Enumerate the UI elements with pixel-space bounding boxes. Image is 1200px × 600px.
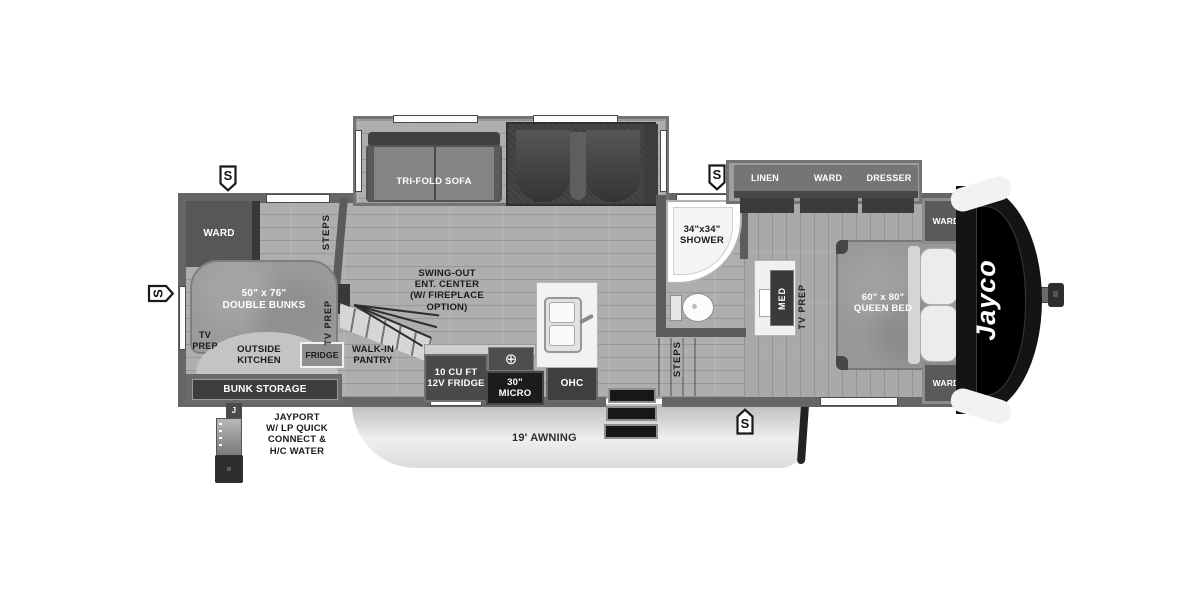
fridge-12v-label: 10 CU FT 12V FRIDGE (427, 367, 484, 389)
window-bunkroom-top (266, 194, 330, 203)
tri-fold-sofa: TRI-FOLD SOFA (366, 145, 502, 202)
jayport-label: JAYPORT W/ LP QUICK CONNECT & H/C WATER (244, 412, 350, 457)
jayport-device-lower (215, 455, 243, 483)
fridge-12v: 10 CU FT 12V FRIDGE (424, 354, 488, 402)
slide-end-cabinet (644, 124, 658, 204)
front-cap: Jayco (956, 186, 1042, 414)
sofa-slide-window-1 (393, 115, 478, 123)
window-bottom-bedroom (820, 397, 898, 406)
bunk-wardrobe: WARD (186, 201, 260, 267)
ward-skirt (800, 197, 858, 213)
med-cabinet: MED (770, 270, 794, 326)
dresser-cabinet: DRESSER (860, 165, 918, 198)
ward-slide-label: WARD (814, 173, 842, 184)
microwave: 30" MICRO (486, 371, 544, 405)
speaker-badge-top-left: S (219, 165, 237, 192)
walk-in-pantry-label: WALK-IN PANTRY (340, 344, 406, 366)
entry-step-3 (604, 424, 658, 439)
speaker-badge-bath: S (708, 164, 726, 191)
window-left-wall (179, 286, 186, 350)
ward-slide-cabinet: WARD (796, 165, 860, 198)
outside-kitchen-label: OUTSIDE KITCHEN (216, 344, 302, 366)
speaker-badge-left: S (148, 285, 175, 303)
bedroom-tv-prep-label: TV PREP (797, 284, 808, 330)
ent-center-label: SWING-OUT ENT. CENTER (W/ FIREPLACE OPTI… (390, 268, 504, 313)
jayport-device-upper (216, 418, 242, 456)
hitch-block (1048, 283, 1064, 307)
jayport-tab: J (226, 403, 242, 418)
rv-floorplan: 19' AWNING WARD STEPS 50" x 76" DOUBLE B… (0, 0, 1200, 600)
awning-label: 19' AWNING (512, 432, 577, 445)
queen-bed-label: 60" x 80" QUEEN BED (846, 292, 920, 314)
theater-seat-left (516, 130, 570, 202)
dresser-skirt (862, 197, 914, 213)
bath-steps-label: STEPS (672, 340, 683, 378)
ohc-cabinet: OHC (546, 366, 598, 402)
bunk-wardrobe-label: WARD (203, 228, 234, 240)
theater-seat-right (586, 130, 640, 202)
bunk-storage-bar: BUNK STORAGE (192, 379, 338, 400)
sofa-slide-window-right (660, 130, 667, 192)
jayport-tab-label: J (232, 406, 237, 415)
linen-label: LINEN (751, 173, 779, 184)
bunk-storage-label: BUNK STORAGE (223, 384, 306, 396)
entry-step-1 (608, 388, 656, 403)
bed-pillow-bottom (920, 305, 958, 362)
bed-corner-top (836, 240, 848, 254)
bunk-storage: BUNK STORAGE (186, 374, 342, 403)
outside-kitchen-fridge: FRIDGE (300, 342, 344, 368)
theater-seating (506, 122, 656, 206)
linen-cabinet: LINEN (734, 165, 796, 198)
bath-wall-left (656, 195, 666, 335)
speaker-badge-bottom: S (736, 408, 754, 435)
entry-step-2 (606, 406, 657, 421)
microwave-label: 30" MICRO (499, 377, 532, 399)
queen-bed: 60" x 80" QUEEN BED (836, 240, 968, 370)
bed-pillow-top (920, 248, 958, 305)
bunk-tv-prep-side-label: TV PREP (323, 300, 334, 346)
kitchen-sink (544, 297, 582, 353)
bunk-steps-label: STEPS (321, 214, 332, 250)
ohc-label: OHC (561, 378, 584, 390)
double-bunks-label: 50" x 76" DOUBLE BUNKS (192, 288, 336, 312)
dresser-label: DRESSER (867, 173, 912, 184)
tri-fold-sofa-label: TRI-FOLD SOFA (396, 176, 471, 187)
toilet (670, 293, 716, 323)
outside-fridge-label: FRIDGE (305, 350, 338, 360)
burner-icon: ⊕ (505, 352, 518, 367)
jayco-logo: Jayco (971, 240, 1005, 360)
cooktop: ⊕ (488, 347, 534, 371)
shower-label: 34"x34" SHOWER (670, 224, 734, 246)
med-label: MED (777, 287, 787, 310)
kitchen-sink-counter (536, 282, 598, 368)
bath-wall-bottom (656, 328, 746, 337)
bed-corner-bottom (836, 356, 848, 370)
linen-skirt (740, 197, 794, 213)
sofa-slide-window-left (355, 130, 362, 192)
theater-console (570, 132, 586, 200)
